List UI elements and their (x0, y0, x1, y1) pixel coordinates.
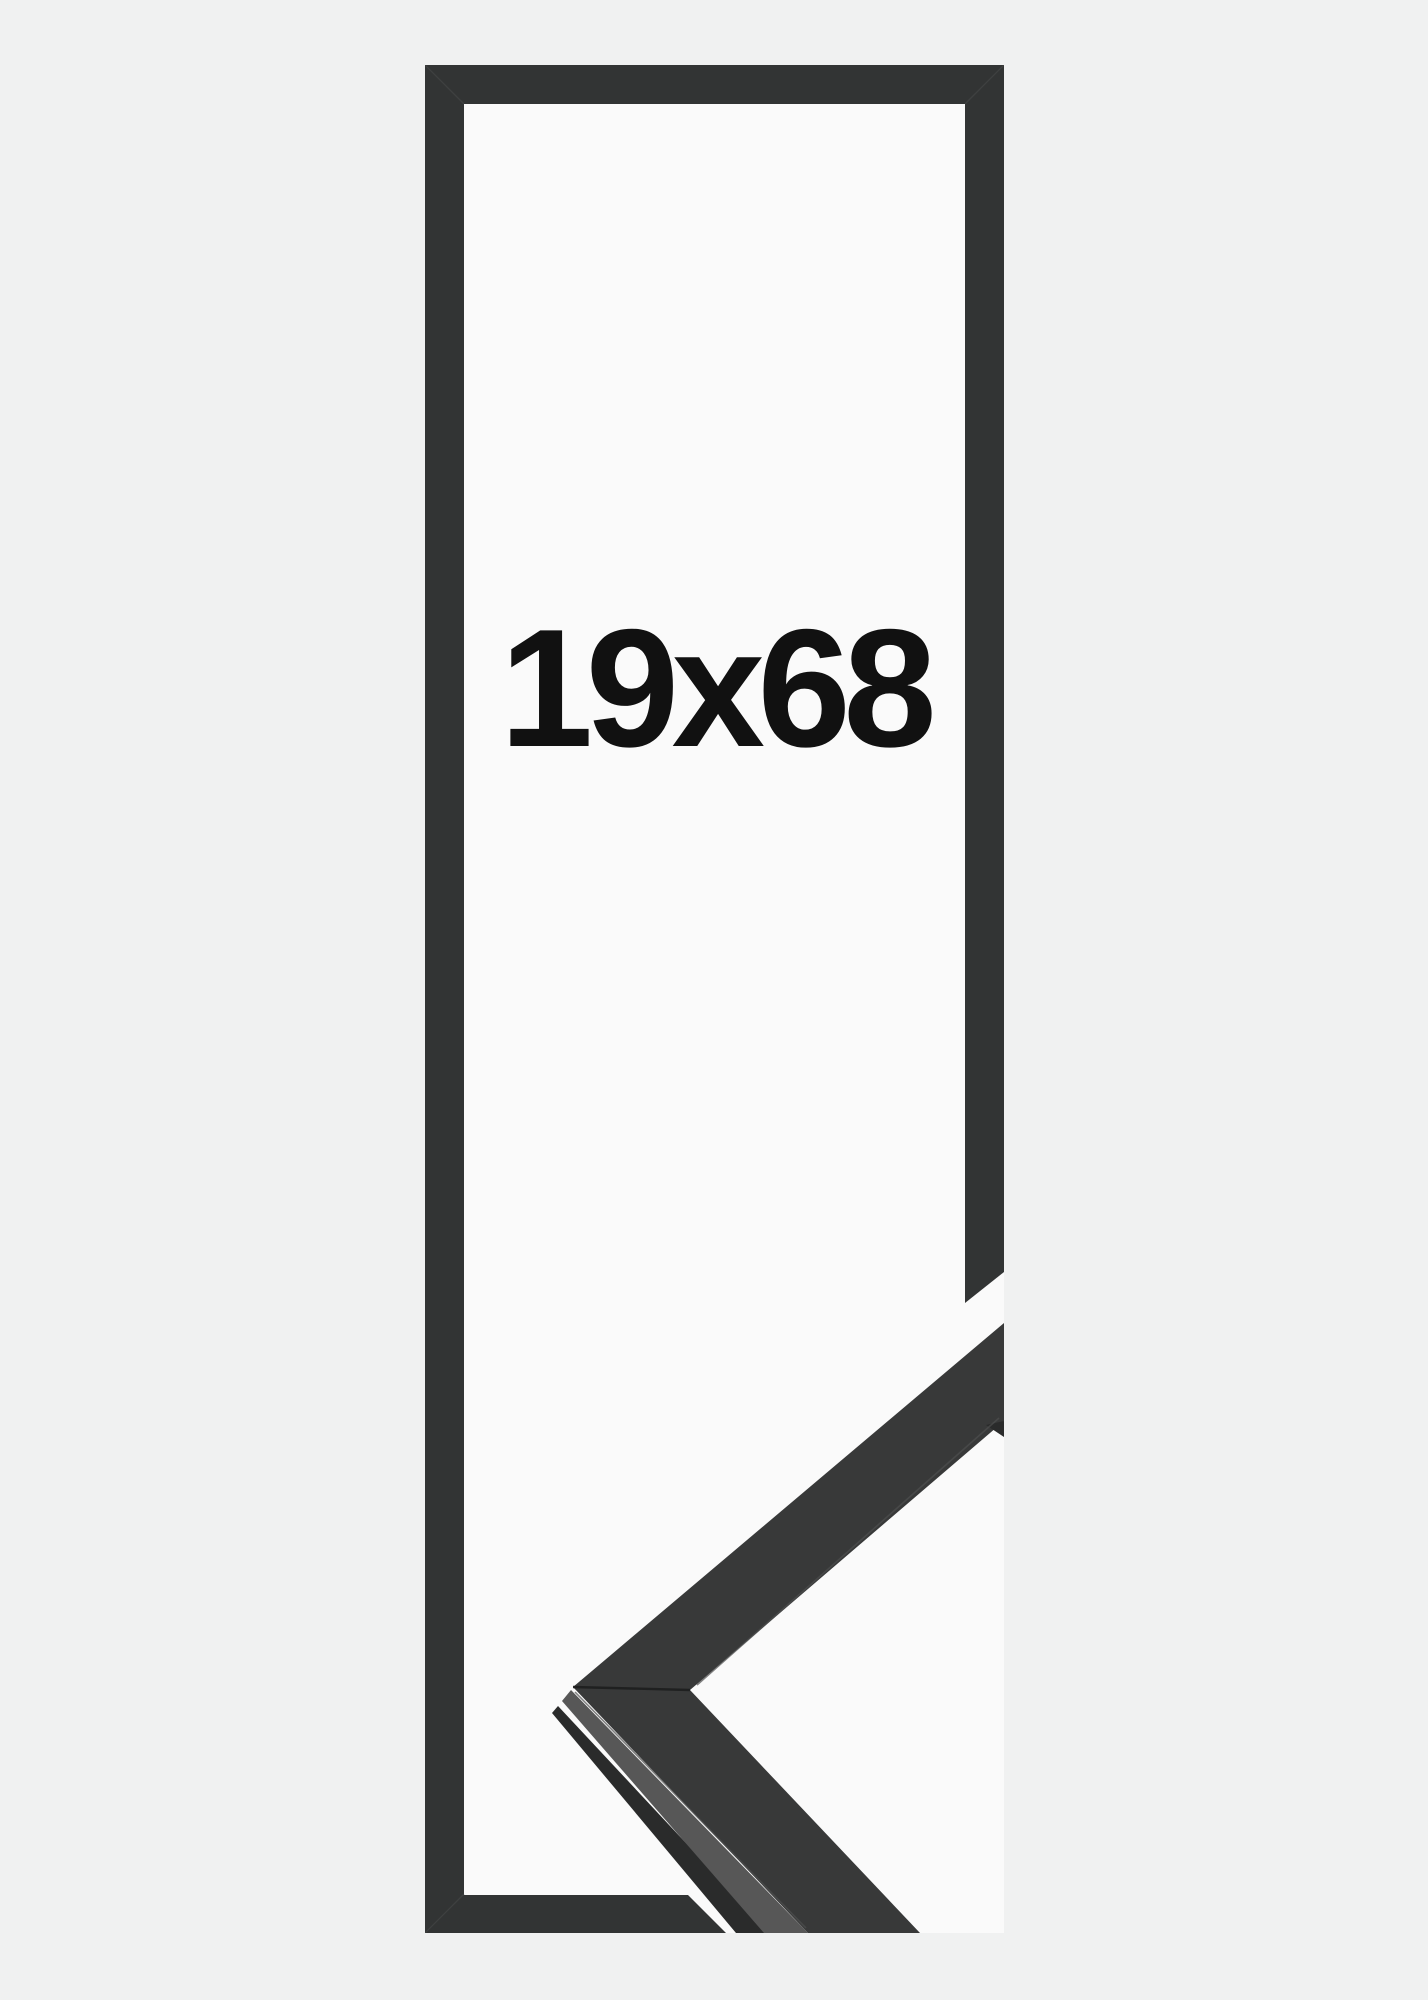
frame-bottom-bar-diagonal-cut (464, 1895, 726, 1933)
moulding-top-face (573, 1323, 1004, 1933)
frame-outline-graphic (425, 65, 1004, 1933)
product-image-page: 19x68 (0, 0, 1428, 2000)
frame-top-bar (425, 65, 1004, 104)
frame-size-label: 19x68 (425, 603, 1004, 773)
frame-preview-area: 19x68 (425, 65, 1004, 1933)
frame-left-bar (425, 104, 464, 1933)
